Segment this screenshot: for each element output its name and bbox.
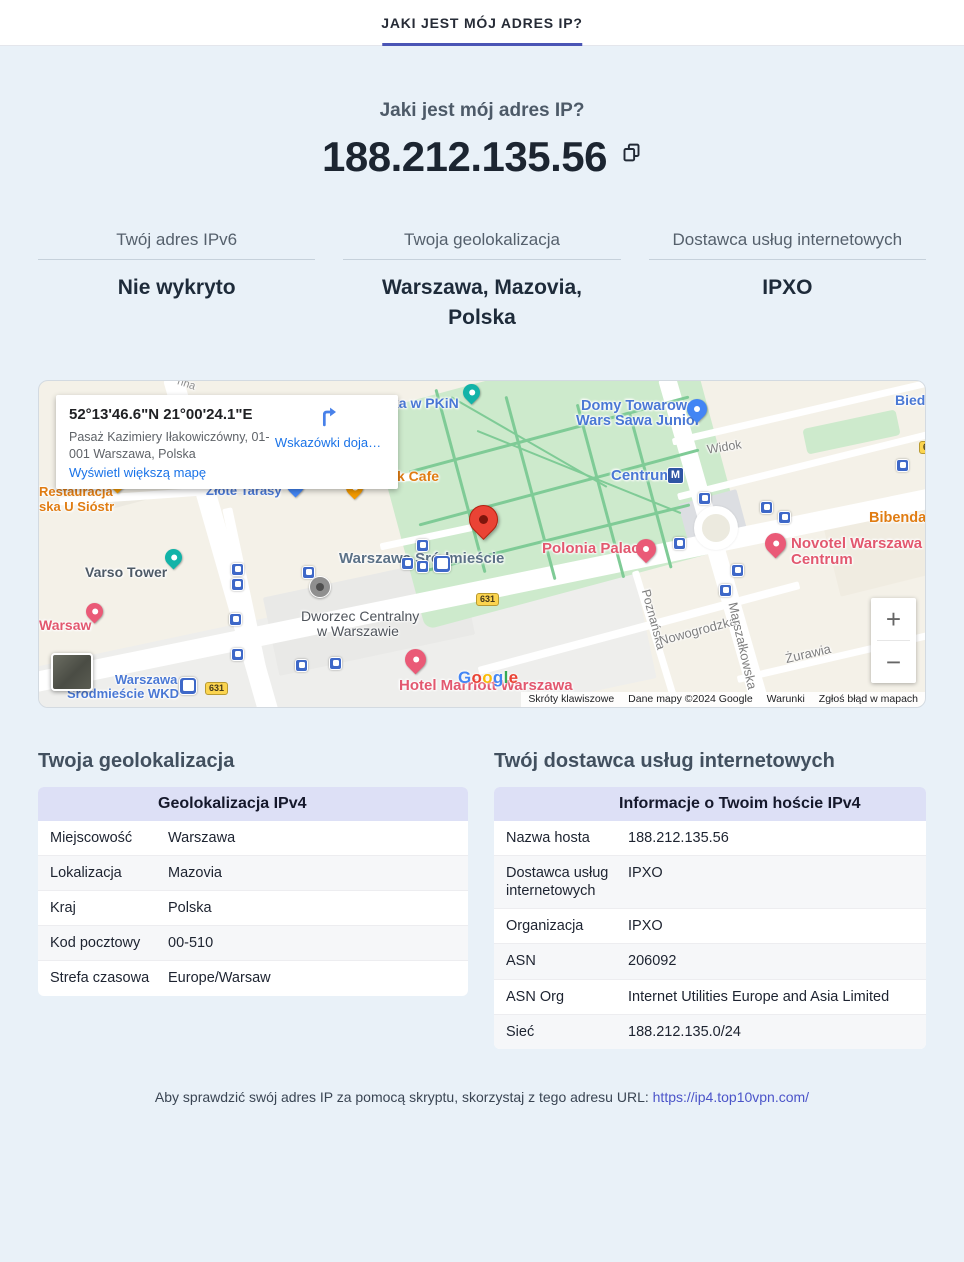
geolocation-section: Twoja geolokalizacja Geolokalizacja IPv4… xyxy=(38,750,468,1049)
roundabout xyxy=(694,506,738,550)
section-title-geolocation: Twoja geolokalizacja xyxy=(38,750,468,773)
google-logo: Google xyxy=(458,668,518,688)
directions-icon xyxy=(316,415,341,432)
label-cell: Kod pocztowy xyxy=(38,926,168,961)
summary-ipv6: Twój adres IPv6 Nie wykryto xyxy=(38,230,315,334)
value-cell: Mazovia xyxy=(168,856,468,891)
transit-glyph xyxy=(306,569,312,575)
view-larger-map-link[interactable]: Wyświetl większą mapę xyxy=(69,465,206,480)
transit-icon[interactable] xyxy=(673,537,686,550)
divider xyxy=(343,259,620,260)
transit-glyph xyxy=(782,514,788,520)
value-cell: Europe/Warsaw xyxy=(168,961,468,996)
transit-glyph xyxy=(437,558,448,569)
metro-icon[interactable]: M xyxy=(667,467,684,484)
label-cell: Nazwa hosta xyxy=(494,821,628,856)
label-cell: ASN xyxy=(494,944,628,979)
directions-label: Wskazówki doja… xyxy=(268,435,388,450)
transit-glyph xyxy=(233,616,239,622)
poi-label-bibenda[interactable]: Bibenda xyxy=(869,511,926,526)
directions-button[interactable]: Wskazówki doja… xyxy=(268,403,388,450)
transit-glyph xyxy=(183,680,194,691)
transit-icon[interactable] xyxy=(896,459,909,472)
transit-glyph xyxy=(420,563,426,569)
road-shield-631: 631 xyxy=(476,593,499,606)
google-logo-letter: g xyxy=(493,668,504,687)
pin-dot xyxy=(642,545,650,553)
summary-columns: Twój adres IPv6 Nie wykryto Twoja geolok… xyxy=(38,230,926,334)
copy-icon[interactable] xyxy=(621,142,642,166)
train-station-icon[interactable] xyxy=(179,677,197,695)
map-address-line2: 001 Warszawa, Polska xyxy=(69,447,196,461)
script-note: Aby sprawdzić swój adres IP za pomocą sk… xyxy=(38,1089,926,1105)
transit-icon[interactable] xyxy=(778,511,791,524)
road-shield-631: 631 xyxy=(205,682,228,695)
pin-dot xyxy=(169,553,177,561)
google-logo-letter: e xyxy=(509,668,519,687)
station-label-wkd1[interactable]: Warszawa xyxy=(115,673,177,687)
poi-label-restauracja2[interactable]: ska U Sióstr xyxy=(39,500,114,514)
transit-icon[interactable] xyxy=(302,566,315,579)
transit-glyph xyxy=(235,581,241,587)
transit-glyph xyxy=(235,566,241,572)
attribution-item[interactable]: Warunki xyxy=(760,693,812,705)
pin-dot xyxy=(771,539,779,547)
label-cell: ASN Org xyxy=(494,979,628,1014)
active-tab-indicator xyxy=(382,43,582,46)
poi-label-wars-sawa1[interactable]: Domy Towarowe xyxy=(581,399,695,414)
pin-dot xyxy=(693,405,701,413)
transit-icon[interactable] xyxy=(731,564,744,577)
transit-icon[interactable] xyxy=(401,557,414,570)
poi-label-polonia[interactable]: Polonia Palace xyxy=(542,541,648,557)
poi-label-dworzec1[interactable]: Dworzec Centralny xyxy=(301,609,419,624)
street-label-marszalkowska: Marszałkowska xyxy=(726,601,759,691)
table-row: Sieć188.212.135.0/24 xyxy=(494,1014,926,1049)
value-cell: Polska xyxy=(168,891,468,926)
tab-what-is-my-ip[interactable]: JAKI JEST MÓJ ADRES IP? xyxy=(363,0,600,45)
google-logo-letter: o xyxy=(482,668,493,687)
table-row: Dostawca usług internetowychIPXO xyxy=(494,856,926,909)
road-shield-6: 6 xyxy=(919,441,926,454)
poi-label-dworzec2[interactable]: w Warszawie xyxy=(317,624,399,639)
value-cell: 206092 xyxy=(628,944,926,979)
table-row: Strefa czasowaEurope/Warsaw xyxy=(38,961,468,996)
transit-glyph xyxy=(702,495,708,501)
table-row: OrganizacjaIPXO xyxy=(494,909,926,944)
pin-dot xyxy=(90,607,98,615)
poi-label-cafe[interactable]: k Cafe xyxy=(397,469,439,484)
transit-glyph xyxy=(333,660,339,666)
map-coordinates: 52°13'46.6"N 21°00'24.1"E xyxy=(69,406,253,423)
summary-value: IPXO xyxy=(671,273,903,303)
table-row: LokalizacjaMazovia xyxy=(38,856,468,891)
value-cell: IPXO xyxy=(628,856,926,909)
table-row: ASN206092 xyxy=(494,944,926,979)
value-cell: 188.212.135.0/24 xyxy=(628,1014,926,1049)
poi-label-centrum[interactable]: Centrum xyxy=(611,468,673,484)
attribution-item[interactable]: Zgłoś błąd w mapach xyxy=(812,693,925,705)
transit-glyph xyxy=(405,560,411,566)
map-address: Pasaż Kazimiery Iłakowiczówny, 01- 001 W… xyxy=(69,429,274,463)
transit-icon[interactable] xyxy=(416,539,429,552)
divider xyxy=(649,259,926,260)
geolocation-table-body: MiejscowośćWarszawaLokalizacjaMazoviaKra… xyxy=(38,821,468,996)
isp-table: Informacje o Twoim hoście IPv4 Nazwa hos… xyxy=(494,787,926,1049)
google-logo-letter: o xyxy=(472,668,483,687)
map-zoom-control: + − xyxy=(871,598,916,683)
summary-label: Twój adres IPv6 xyxy=(38,230,315,250)
value-cell: 00-510 xyxy=(168,926,468,961)
zoom-in-button[interactable]: + xyxy=(871,598,916,640)
transit-glyph xyxy=(735,567,741,573)
map-attribution: Skróty klawiszoweDane mapy ©2024 GoogleW… xyxy=(521,692,925,707)
page-title: Jaki jest mój adres IP? xyxy=(38,100,926,122)
transit-icon[interactable] xyxy=(760,501,773,514)
transit-glyph xyxy=(420,542,426,548)
summary-label: Twoja geolokalizacja xyxy=(343,230,620,250)
table-row: Kod pocztowy00-510 xyxy=(38,926,468,961)
transit-icon[interactable] xyxy=(231,563,244,576)
geolocation-table: Geolokalizacja IPv4 MiejscowośćWarszawaL… xyxy=(38,787,468,996)
ip-address-value: 188.212.135.56 xyxy=(322,136,607,178)
summary-value: Nie wykryto xyxy=(61,273,293,303)
isp-section: Twój dostawca usług internetowych Inform… xyxy=(494,750,926,1049)
divider xyxy=(38,259,315,260)
label-cell: Sieć xyxy=(494,1014,628,1049)
table-row: KrajPolska xyxy=(38,891,468,926)
summary-isp: Dostawca usług internetowych IPXO xyxy=(649,230,926,334)
summary-value: Warszawa, Mazovia, Polska xyxy=(366,273,598,334)
label-cell: Organizacja xyxy=(494,909,628,944)
value-cell: IPXO xyxy=(628,909,926,944)
poi-label-wars-sawa2[interactable]: Wars Sawa Junior xyxy=(576,414,700,429)
transit-glyph xyxy=(764,504,770,510)
table-row: MiejscowośćWarszawa xyxy=(38,821,468,856)
table-header: Informacje o Twoim hoście IPv4 xyxy=(494,787,926,821)
satellite-toggle[interactable] xyxy=(51,653,93,691)
transit-glyph xyxy=(299,662,305,668)
poi-label-biedronka[interactable]: Biedr xyxy=(895,393,926,408)
table-header: Geolokalizacja IPv4 xyxy=(38,787,468,821)
summary-label: Dostawca usług internetowych xyxy=(649,230,926,250)
transit-glyph xyxy=(677,540,683,546)
poi-label-pkin[interactable]: ka w PKiN xyxy=(391,396,459,411)
value-cell: Warszawa xyxy=(168,821,468,856)
transit-icon[interactable] xyxy=(229,613,242,626)
label-cell: Dostawca usług internetowych xyxy=(494,856,628,909)
poi-label-novotel2[interactable]: Centrum xyxy=(791,552,853,568)
transit-icon[interactable] xyxy=(231,578,244,591)
transit-icon[interactable] xyxy=(719,584,732,597)
transit-glyph xyxy=(900,462,906,468)
pin-dot xyxy=(477,513,490,526)
isp-table-body: Nazwa hosta188.212.135.56Dostawca usług … xyxy=(494,821,926,1049)
google-map-embed: nnaRestauracjaska U SióstrZłote Tarasyk … xyxy=(38,380,926,708)
top-navigation: JAKI JEST MÓJ ADRES IP? xyxy=(0,0,964,46)
transit-icon[interactable] xyxy=(698,492,711,505)
zoom-out-button[interactable]: − xyxy=(871,641,916,683)
value-cell: 188.212.135.56 xyxy=(628,821,926,856)
dworzec-marker[interactable] xyxy=(309,576,331,598)
value-cell: Internet Utilities Europe and Asia Limit… xyxy=(628,979,926,1014)
google-logo-letter: G xyxy=(458,668,472,687)
script-url-link[interactable]: https://ip4.top10vpn.com/ xyxy=(653,1089,809,1105)
transit-glyph xyxy=(235,651,241,657)
summary-geolocation: Twoja geolokalizacja Warszawa, Mazovia, … xyxy=(343,230,620,334)
pin-dot xyxy=(411,655,419,663)
transit-glyph xyxy=(723,587,729,593)
map-address-line1: Pasaż Kazimiery Iłakowiczówny, 01- xyxy=(69,430,270,444)
pin-dot xyxy=(467,388,475,396)
label-cell: Strefa czasowa xyxy=(38,961,168,996)
attribution-item[interactable]: Skróty klawiszowe xyxy=(521,693,621,705)
label-cell: Lokalizacja xyxy=(38,856,168,891)
transit-icon[interactable] xyxy=(329,657,342,670)
transit-icon[interactable] xyxy=(295,659,308,672)
transit-icon[interactable] xyxy=(231,648,244,661)
section-title-isp: Twój dostawca usług internetowych xyxy=(494,750,926,773)
label-cell: Miejscowość xyxy=(38,821,168,856)
table-row: ASN OrgInternet Utilities Europe and Asi… xyxy=(494,979,926,1014)
map-info-card: 52°13'46.6"N 21°00'24.1"E Pasaż Kazimier… xyxy=(56,395,398,489)
train-station-icon[interactable] xyxy=(433,555,451,573)
poi-label-varso[interactable]: Varso Tower xyxy=(85,565,167,580)
attribution-item: Dane mapy ©2024 Google xyxy=(621,693,759,705)
pin-dot xyxy=(316,583,324,591)
table-row: Nazwa hosta188.212.135.56 xyxy=(494,821,926,856)
poi-label-warsaw-hotel[interactable]: Warsaw xyxy=(39,618,91,633)
street-label-widok: Widok xyxy=(706,438,742,456)
label-cell: Kraj xyxy=(38,891,168,926)
tab-label: JAKI JEST MÓJ ADRES IP? xyxy=(381,15,582,31)
transit-icon[interactable] xyxy=(416,560,429,573)
poi-label-novotel1[interactable]: Novotel Warszawa xyxy=(791,536,922,552)
script-note-text: Aby sprawdzić swój adres IP za pomocą sk… xyxy=(155,1089,649,1105)
